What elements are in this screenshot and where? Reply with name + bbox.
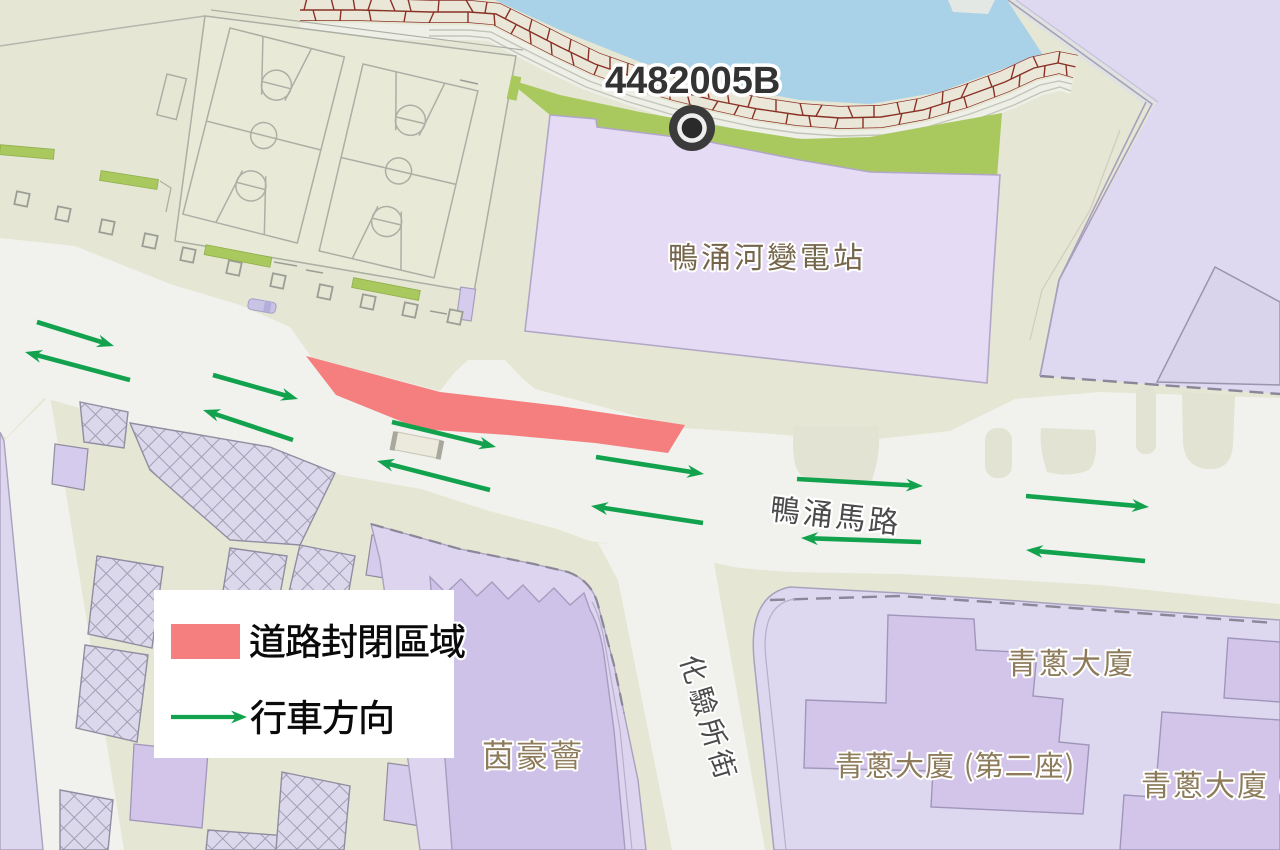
svg-text:4482005B: 4482005B	[605, 60, 780, 102]
